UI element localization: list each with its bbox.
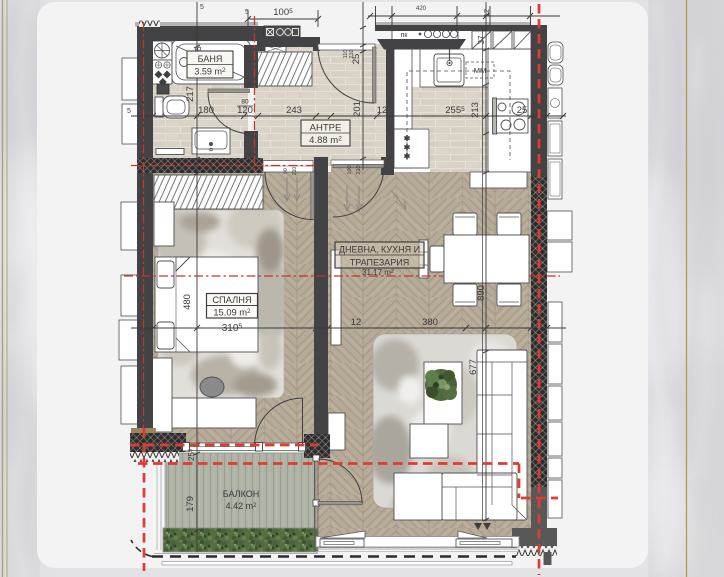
svg-text:БАЛКОН: БАЛКОН <box>223 489 259 499</box>
svg-text:СПАЛНЯ: СПАЛНЯ <box>212 295 251 305</box>
svg-text:5: 5 <box>127 108 131 115</box>
svg-text:БАНЯ: БАНЯ <box>198 54 223 64</box>
svg-text:4.88 m2: 4.88 m2 <box>309 135 342 146</box>
svg-text:80: 80 <box>241 99 249 106</box>
svg-text:ДНЕВНА, КУХНЯ И: ДНЕВНА, КУХНЯ И <box>339 245 420 255</box>
svg-text:180: 180 <box>198 105 214 116</box>
svg-text:213: 213 <box>470 102 481 118</box>
svg-text:120: 120 <box>237 105 253 116</box>
svg-text:380: 380 <box>422 317 438 328</box>
svg-text:179: 179 <box>185 496 196 512</box>
svg-text:210: 210 <box>356 165 362 174</box>
svg-text:37: 37 <box>477 35 486 44</box>
svg-text:3.59 m2: 3.59 m2 <box>194 67 226 77</box>
svg-text:201: 201 <box>352 101 363 117</box>
svg-text:31.17 m2: 31.17 m2 <box>362 268 394 277</box>
svg-text:90: 90 <box>283 168 289 174</box>
svg-text:243: 243 <box>286 105 302 116</box>
svg-text:25: 25 <box>517 105 528 116</box>
svg-text:4.42 m2: 4.42 m2 <box>226 501 258 511</box>
svg-text:480: 480 <box>182 294 193 310</box>
svg-text:5: 5 <box>245 9 249 16</box>
svg-text:210: 210 <box>292 167 298 176</box>
svg-text:15.09 m2: 15.09 m2 <box>213 308 251 318</box>
svg-text:677: 677 <box>468 359 479 375</box>
svg-text:12: 12 <box>351 317 362 328</box>
svg-text:420: 420 <box>416 6 427 12</box>
svg-text:12: 12 <box>377 105 388 116</box>
svg-text:MM: MM <box>474 66 487 75</box>
svg-text:пк: пк <box>401 32 409 39</box>
svg-text:100: 100 <box>347 165 353 174</box>
svg-text:217: 217 <box>185 86 196 102</box>
svg-text:890: 890 <box>476 285 487 301</box>
svg-text:АНТРЕ: АНТРЕ <box>310 123 342 134</box>
svg-text:ТРАПЕЗАРИЯ: ТРАПЕЗАРИЯ <box>350 258 409 268</box>
svg-text:12: 12 <box>482 9 491 17</box>
svg-text:5: 5 <box>200 4 204 11</box>
svg-text:210: 210 <box>349 49 355 58</box>
